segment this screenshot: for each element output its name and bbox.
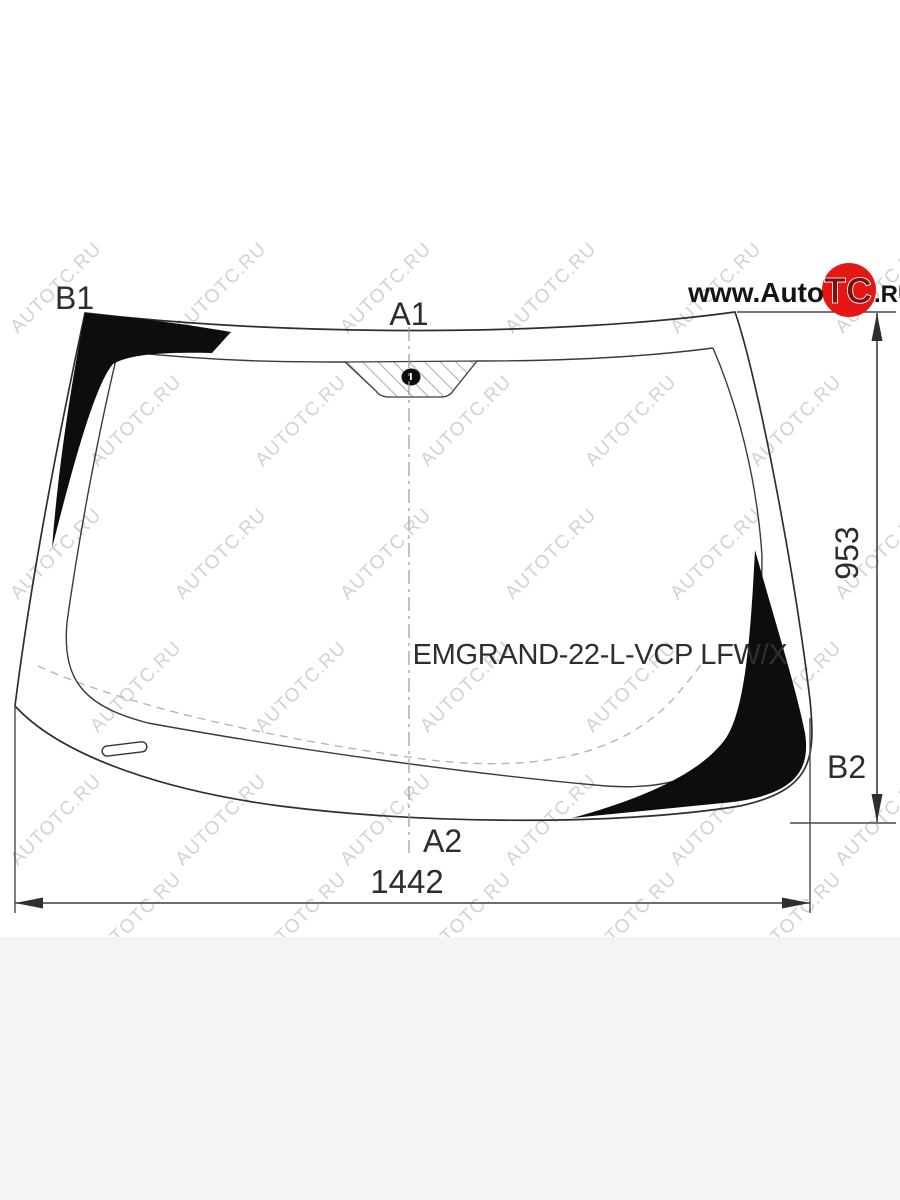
logo-text-prefix: www.Auto bbox=[687, 277, 824, 308]
label-a1: A1 bbox=[389, 296, 428, 332]
label-a2: A2 bbox=[423, 823, 462, 859]
dim-value-height: 953 bbox=[829, 526, 865, 579]
windshield-diagram-page: AUTOTC.RUAUTOTC.RUAUTOTC.RUAUTOTC.RUAUTO… bbox=[0, 0, 900, 1200]
label-b1: B1 bbox=[55, 280, 94, 316]
label-b2: B2 bbox=[827, 749, 866, 785]
footer-strip bbox=[0, 937, 900, 1200]
logo-emblem-tc: TC bbox=[824, 270, 872, 311]
part-code: EMGRAND-22-L-VCP LFW/X bbox=[413, 639, 788, 671]
dim-value-width: 1442 bbox=[370, 863, 443, 900]
windshield-diagram: AUTOTC.RUAUTOTC.RUAUTOTC.RUAUTOTC.RUAUTO… bbox=[0, 0, 900, 1200]
logo-text-suffix: .RU bbox=[874, 281, 900, 308]
